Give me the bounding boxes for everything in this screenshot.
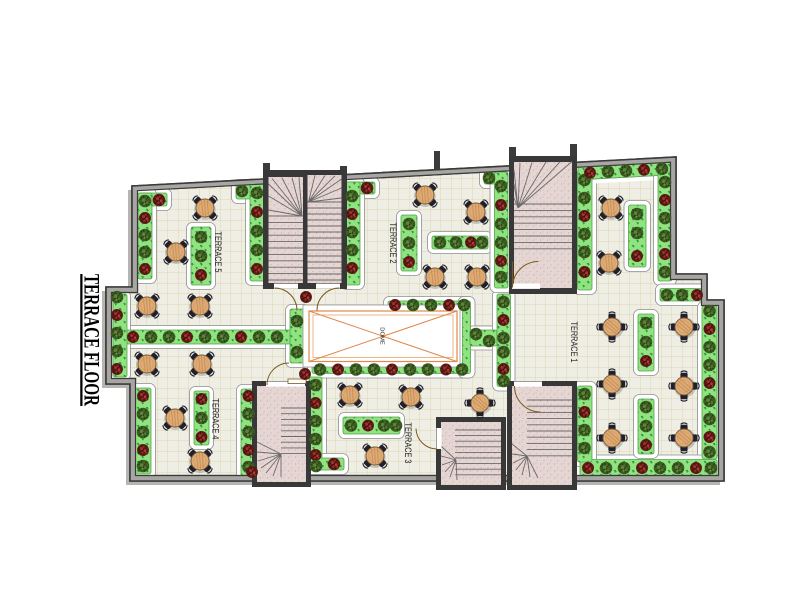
svg-text:TERRACE 1: TERRACE 1 (569, 322, 579, 363)
svg-text:TERRACE 4: TERRACE 4 (211, 399, 221, 440)
svg-text:DOME: DOME (379, 327, 385, 345)
svg-text:TERRACE 2: TERRACE 2 (388, 223, 398, 264)
svg-text:TERRACE 3: TERRACE 3 (403, 423, 413, 464)
svg-text:TERRACE FLOOR: TERRACE FLOOR (80, 274, 105, 406)
svg-text:TERRACE 5: TERRACE 5 (213, 232, 223, 273)
